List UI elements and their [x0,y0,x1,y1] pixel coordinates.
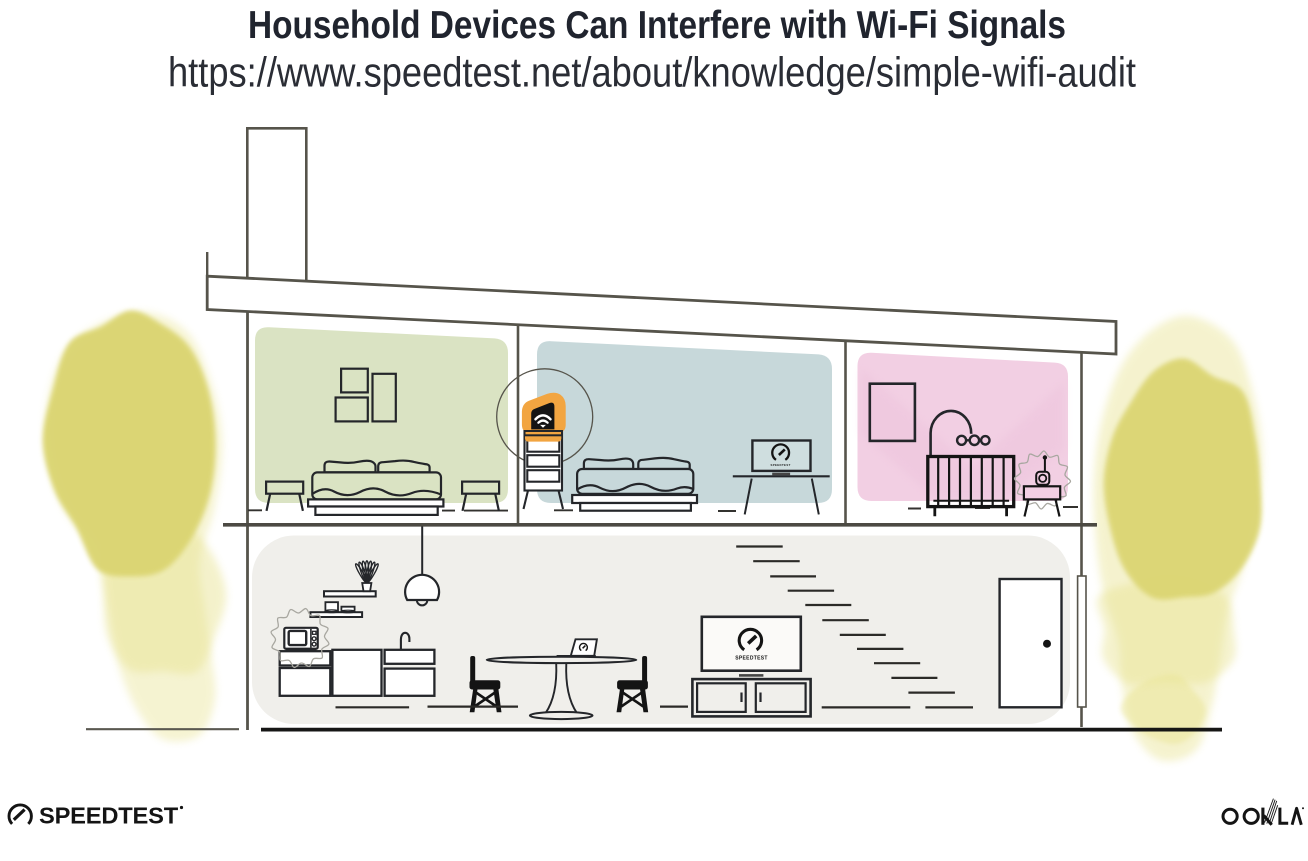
svg-text:SPEEDTEST: SPEEDTEST [39,802,179,828]
svg-text:SPEEDTEST: SPEEDTEST [770,463,790,467]
svg-text:SPEEDTEST: SPEEDTEST [735,656,767,662]
svg-text:https://www.speedtest.net/abou: https://www.speedtest.net/about/knowledg… [168,49,1136,96]
svg-text:Household Devices Can Interfer: Household Devices Can Interfere with Wi-… [248,4,1066,47]
